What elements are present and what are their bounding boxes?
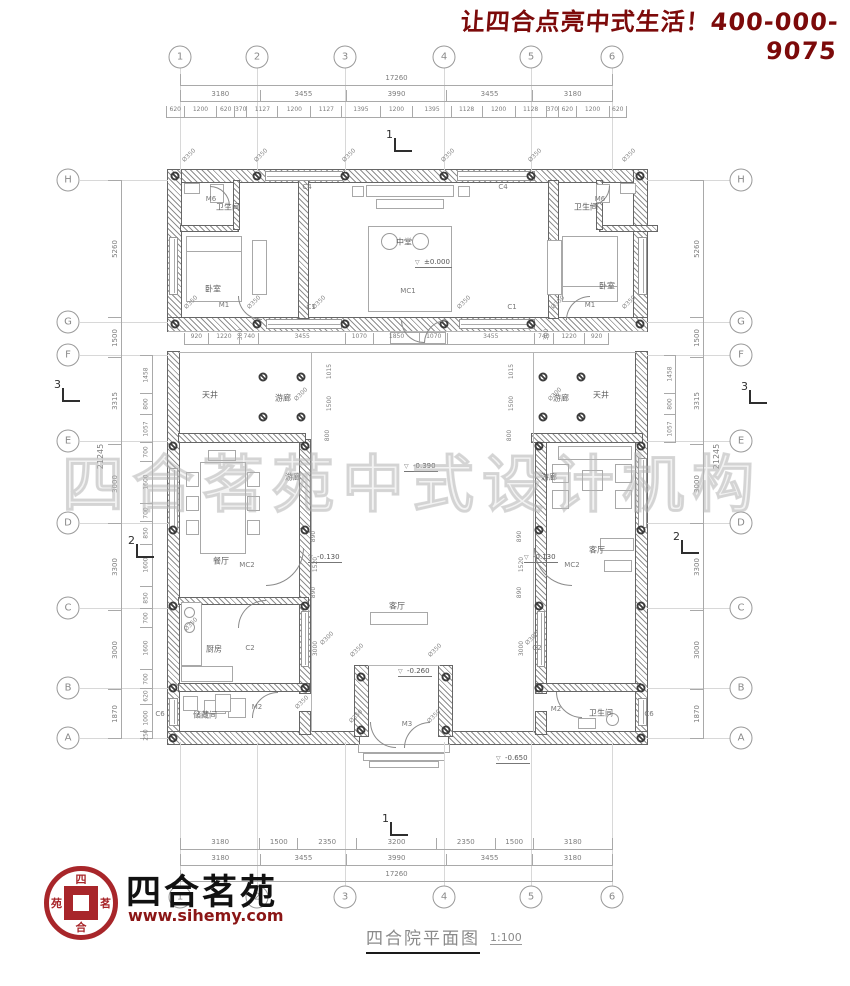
dim-value: 700 xyxy=(140,609,152,628)
dim-value: 3455 xyxy=(448,333,535,344)
dim-value: 1057 xyxy=(140,415,152,443)
dim-value: 1200 xyxy=(278,106,311,117)
column-symbol xyxy=(637,526,646,535)
drawing-line xyxy=(311,353,312,732)
column-symbol xyxy=(253,172,262,181)
section-line-icon xyxy=(136,544,154,558)
furniture-outline xyxy=(363,753,445,761)
wall-segment xyxy=(300,712,310,734)
grid-line-stub xyxy=(647,738,731,739)
dim-value: 1458 xyxy=(140,356,152,394)
grid-line-stub xyxy=(444,742,445,888)
window-symbol xyxy=(169,237,178,295)
grid-line-stub xyxy=(80,180,168,181)
room-label: 卫生间 xyxy=(589,708,613,719)
grid-line-stub xyxy=(647,688,731,689)
dim-value: 1127 xyxy=(247,106,278,117)
dim-value: 620 xyxy=(217,106,235,117)
dim-chain-horizontal: 31803455399034553180 xyxy=(180,90,613,102)
dim-value: 3000 xyxy=(108,445,121,524)
dim-chain-horizontal: 3180150023503200235015003180 xyxy=(180,838,613,850)
section-number: 3 xyxy=(741,380,748,393)
room-label: 卧室 xyxy=(599,281,615,292)
dim-value: 3315 xyxy=(108,358,121,445)
section-number: 1 xyxy=(386,128,393,141)
grid-bubble: G xyxy=(730,311,753,334)
section-line-icon xyxy=(62,388,80,402)
dim-value: 1220 xyxy=(209,333,240,344)
grid-bubble: B xyxy=(57,677,80,700)
furniture-outline xyxy=(247,520,260,535)
opening-code-label: M1 xyxy=(585,301,596,309)
furniture-outline xyxy=(252,240,267,295)
furniture-outline xyxy=(552,490,569,509)
window-symbol xyxy=(301,611,309,667)
dim-value: 5260 xyxy=(108,181,121,318)
room-label: 餐厅 xyxy=(213,556,229,567)
seal-char: 苑 xyxy=(51,895,62,911)
grid-line-stub xyxy=(647,322,731,323)
wall-segment xyxy=(600,226,657,231)
grid-bubble: G xyxy=(57,311,80,334)
opening-code-label: M2 xyxy=(252,703,263,711)
section-number: 1 xyxy=(382,812,389,825)
column-symbol xyxy=(637,734,646,743)
furniture-outline xyxy=(369,761,439,768)
dim-value: 1870 xyxy=(690,690,703,740)
column-dia-label: Ø350 xyxy=(349,642,365,658)
column-symbol xyxy=(169,442,178,451)
dim-value: 1500 xyxy=(108,318,121,358)
dim-value: 3300 xyxy=(690,524,703,611)
grid-line-stub xyxy=(612,742,613,888)
dim-value: 3455 xyxy=(261,90,347,101)
grid-bubble: E xyxy=(57,430,80,453)
room-label: 游廊 xyxy=(541,472,557,483)
column-dia-label: Ø300 xyxy=(319,630,335,646)
column-symbol xyxy=(442,726,451,735)
dim-value: 620 xyxy=(610,106,628,117)
level-mark: -0.260 xyxy=(398,667,432,677)
wall-segment xyxy=(168,170,647,182)
dim-chain-horizontal: 6201200620370112712001127139512001395112… xyxy=(166,106,627,118)
dim-value: 3180 xyxy=(533,90,613,101)
slogan-text: 让四合点亮中式生活！400-000-9075 xyxy=(398,2,840,65)
dim-value: 3000 xyxy=(108,611,121,690)
column-dia-label: Ø350 xyxy=(456,294,472,310)
furniture-outline xyxy=(620,183,636,194)
column-symbol xyxy=(301,442,310,451)
grid-line-stub xyxy=(80,523,168,524)
section-number: 3 xyxy=(54,378,61,391)
opening-code-label: M2 xyxy=(551,705,562,713)
section-line-icon xyxy=(749,390,767,404)
dim-value: 700 xyxy=(140,504,152,523)
column-symbol xyxy=(171,320,180,329)
column-symbol xyxy=(636,320,645,329)
grid-bubble: A xyxy=(57,727,80,750)
dim-value: 17260 xyxy=(181,74,613,85)
seal-center xyxy=(64,886,98,920)
dim-chain-horizontal: 9201220740345510701850107034557401220920 xyxy=(184,333,609,345)
grid-line-stub xyxy=(345,742,346,888)
dim-value: 920 xyxy=(585,333,609,344)
wall-segment xyxy=(168,732,359,744)
dim-value: 620 xyxy=(140,689,152,706)
dim-value: 800 xyxy=(140,394,152,415)
opening-code-label: M6 xyxy=(595,195,606,203)
dim-value: 1220 xyxy=(554,333,585,344)
interior-dim-value: 3000 xyxy=(518,641,525,656)
column-symbol xyxy=(169,526,178,535)
floor-plan-canvas: 卫生间卫生间卧室卧室中堂天井天井游廊游廊游廊游廊餐厅厨房储藏间客厅客厅卫生间M6… xyxy=(0,0,850,986)
window-symbol xyxy=(265,171,343,181)
opening-code-label: C2 xyxy=(245,644,254,652)
furniture-outline xyxy=(186,520,199,535)
grid-bubble: C xyxy=(730,597,753,620)
interior-dim-value: 1500 xyxy=(326,396,333,411)
opening-code-label: MC2 xyxy=(564,561,579,569)
column-symbol xyxy=(535,684,544,693)
column-symbol xyxy=(442,673,451,682)
dim-value: 1200 xyxy=(381,106,414,117)
grid-line-stub xyxy=(80,608,168,609)
furniture-outline xyxy=(558,446,632,460)
column-dia-label: Ø300 xyxy=(293,386,309,402)
dim-value: 3000 xyxy=(690,445,703,524)
grid-bubble: D xyxy=(57,512,80,535)
column-symbol xyxy=(527,320,536,329)
column-dia-label: Ø350 xyxy=(440,147,456,163)
dim-total-left: 21245 xyxy=(96,444,105,469)
dim-value: 920 xyxy=(185,333,209,344)
furniture-outline xyxy=(181,666,233,682)
dim-value: 1870 xyxy=(108,690,121,740)
column-symbol xyxy=(169,734,178,743)
column-symbol xyxy=(259,373,268,382)
column-symbol xyxy=(637,442,646,451)
dim-value: 620 xyxy=(559,106,577,117)
column-symbol xyxy=(169,684,178,693)
room-label: 厨房 xyxy=(206,644,222,655)
furniture-outline xyxy=(578,718,596,729)
section-line-icon xyxy=(681,540,699,554)
interior-dim-value: 800 xyxy=(324,430,331,441)
plan-title: 四合院平面图 xyxy=(366,924,480,954)
opening-code-label: C6 xyxy=(155,710,164,718)
window-symbol xyxy=(638,458,647,528)
blueprint-page: 让四合点亮中式生活！400-000-9075 卫生间卫生间卧室卧室中堂天井天井游… xyxy=(0,0,850,986)
dim-value: 1128 xyxy=(516,106,547,117)
opening-code-label: M3 xyxy=(402,720,413,728)
column-dia-label: Ø350 xyxy=(427,642,443,658)
grid-bubble: 3 xyxy=(334,886,357,909)
dim-value: 3990 xyxy=(347,854,447,865)
interior-dim-value: 1015 xyxy=(508,364,515,379)
level-mark: ±0.000 xyxy=(415,258,452,268)
grid-bubble: 6 xyxy=(601,886,624,909)
dim-value: 620 xyxy=(167,106,185,117)
dim-value: 370 xyxy=(235,106,247,117)
column-symbol xyxy=(341,320,350,329)
furniture-outline xyxy=(582,470,603,491)
dim-value: 3455 xyxy=(447,90,533,101)
furniture-outline xyxy=(247,472,260,487)
interior-dim-value: 890 xyxy=(516,587,523,598)
level-mark: -0.390 xyxy=(404,462,438,472)
dim-value: 3180 xyxy=(533,854,613,865)
dim-value: 1850 xyxy=(374,333,421,344)
grid-bubble: 1 xyxy=(169,46,192,69)
column-symbol xyxy=(301,526,310,535)
dim-value: 740 xyxy=(535,333,554,344)
column-symbol xyxy=(357,726,366,735)
furniture-outline xyxy=(366,185,454,197)
grid-bubble: H xyxy=(730,169,753,192)
window-symbol xyxy=(459,319,535,329)
column-symbol xyxy=(297,373,306,382)
furniture-outline xyxy=(186,236,242,252)
furniture-outline xyxy=(376,199,444,209)
column-symbol xyxy=(301,684,310,693)
window-symbol xyxy=(537,611,545,667)
furniture-outline xyxy=(615,490,632,509)
dim-value: 700 xyxy=(140,670,152,689)
drawing-line xyxy=(533,353,534,732)
column-dia-label: Ø350 xyxy=(181,147,197,163)
wall-segment xyxy=(299,181,308,318)
brand-url: www.sihemy.com xyxy=(128,906,284,925)
interior-dim-value: 890 xyxy=(310,587,317,598)
opening-code-label: C2 xyxy=(532,644,541,652)
grid-bubble: D xyxy=(730,512,753,535)
wall-segment xyxy=(179,434,305,442)
furniture-outline xyxy=(604,560,632,572)
seal-char: 四 xyxy=(76,871,87,887)
wall-segment xyxy=(179,684,309,691)
wall-segment xyxy=(536,712,546,734)
room-label: 天井 xyxy=(593,390,609,401)
door-swing-arc xyxy=(266,548,304,586)
interior-dim-value: 890 xyxy=(516,531,523,542)
interior-dim-value: 890 xyxy=(310,531,317,542)
grid-line-stub xyxy=(80,441,168,442)
dim-value: 850 xyxy=(140,522,152,545)
dim-value: 3455 xyxy=(447,854,533,865)
wall-segment xyxy=(449,732,647,744)
dim-value: 1395 xyxy=(413,106,451,117)
dim-value: 3300 xyxy=(108,524,121,611)
column-symbol xyxy=(297,413,306,422)
column-symbol xyxy=(341,172,350,181)
furniture-outline xyxy=(547,240,562,295)
grid-line-stub xyxy=(80,688,168,689)
column-symbol xyxy=(169,602,178,611)
opening-code-label: MC2 xyxy=(239,561,254,569)
drawing-line xyxy=(368,665,440,666)
window-symbol xyxy=(638,237,647,295)
wall-segment xyxy=(532,434,642,442)
grid-line-stub xyxy=(647,523,731,524)
dim-value: 1127 xyxy=(311,106,342,117)
opening-code-label: C6 xyxy=(644,710,653,718)
dim-value: 1128 xyxy=(452,106,483,117)
column-symbol xyxy=(577,373,586,382)
column-symbol xyxy=(440,172,449,181)
furniture-outline xyxy=(352,186,364,197)
window-symbol xyxy=(457,171,535,181)
dim-value: 1458 xyxy=(664,356,675,394)
section-line-icon xyxy=(390,822,408,836)
title-block: 四合院平面图1:100 xyxy=(366,924,522,954)
dim-value: 2350 xyxy=(298,838,357,849)
room-label: 中堂 xyxy=(396,237,412,248)
column-dia-label: Ø350 xyxy=(311,294,327,310)
column-symbol xyxy=(253,320,262,329)
furniture-outline xyxy=(370,612,428,625)
interior-dim-value: 3000 xyxy=(312,641,319,656)
dim-value: 3315 xyxy=(690,358,703,445)
dim-chain-horizontal: 17260 xyxy=(180,74,613,86)
opening-code-label: M1 xyxy=(219,301,230,309)
dim-value: 3180 xyxy=(534,838,613,849)
column-dia-label: Ø350 xyxy=(253,147,269,163)
column-dia-label: Ø350 xyxy=(341,147,357,163)
column-dia-label: Ø350 xyxy=(294,694,310,710)
grid-bubble: E xyxy=(730,430,753,453)
column-symbol xyxy=(636,172,645,181)
grid-line-stub xyxy=(647,441,731,442)
dim-value: 370 xyxy=(547,106,559,117)
furniture-circle xyxy=(381,233,398,250)
column-symbol xyxy=(301,602,310,611)
grid-line-stub xyxy=(647,608,731,609)
furniture-outline xyxy=(615,464,632,483)
column-symbol xyxy=(535,526,544,535)
dim-value: 1500 xyxy=(496,838,534,849)
column-symbol xyxy=(535,602,544,611)
dim-value: 3180 xyxy=(181,838,260,849)
grid-line-stub xyxy=(531,742,532,888)
grid-bubble: 2 xyxy=(246,46,269,69)
dim-value: 1600 xyxy=(140,628,152,670)
dim-value: 1395 xyxy=(342,106,380,117)
column-dia-label: Ø350 xyxy=(621,147,637,163)
window-symbol xyxy=(169,468,178,530)
column-symbol xyxy=(535,442,544,451)
furniture-outline xyxy=(600,538,634,551)
room-label: 游廊 xyxy=(275,393,291,404)
furniture-outline xyxy=(184,183,200,194)
wall-segment xyxy=(536,684,640,691)
grid-bubble: 4 xyxy=(433,886,456,909)
window-symbol xyxy=(169,698,178,726)
section-line-icon xyxy=(394,138,412,152)
grid-bubble: H xyxy=(57,169,80,192)
level-mark: -0.650 xyxy=(496,754,530,764)
section-number: 2 xyxy=(128,534,135,547)
window-symbol xyxy=(266,319,342,329)
dim-value: 1500 xyxy=(690,318,703,358)
column-symbol xyxy=(577,413,586,422)
column-dia-label: Ø350 xyxy=(527,147,543,163)
opening-code-label: MC1 xyxy=(400,287,415,295)
grid-bubble: A xyxy=(730,727,753,750)
furniture-outline xyxy=(208,450,236,461)
dim-value: 5260 xyxy=(690,181,703,318)
room-label: 卫生间 xyxy=(574,202,598,213)
dim-value: 1000 xyxy=(140,705,152,731)
furniture-outline xyxy=(200,462,246,554)
grid-line-stub xyxy=(80,355,168,356)
dim-value: 1057 xyxy=(664,415,675,443)
column-symbol xyxy=(637,602,646,611)
dim-value: 800 xyxy=(664,394,675,415)
column-symbol xyxy=(637,684,646,693)
dim-value: 740 xyxy=(240,333,259,344)
dim-value: 700 xyxy=(140,443,152,462)
interior-dim-value: 800 xyxy=(506,430,513,441)
brand-seal-icon: 四 茗 合 苑 xyxy=(44,866,118,940)
dim-value: 3990 xyxy=(347,90,447,101)
dim-chain-vertical: 5260150033153000330030001870 xyxy=(108,180,122,739)
dim-value: 250 xyxy=(140,732,152,739)
dim-total-right: 21245 xyxy=(712,444,721,469)
room-label: 客厅 xyxy=(589,545,605,556)
furniture-circle xyxy=(412,233,429,250)
dim-chain-vertical: 14588001057 xyxy=(664,355,676,443)
grid-line-stub xyxy=(647,180,731,181)
column-symbol xyxy=(259,413,268,422)
furniture-outline xyxy=(215,694,231,712)
room-label: 卫生间 xyxy=(216,202,240,213)
column-symbol xyxy=(357,673,366,682)
grid-line-stub xyxy=(80,738,168,739)
grid-bubble: C xyxy=(57,597,80,620)
opening-code-label: M6 xyxy=(206,195,217,203)
room-label: 游廊 xyxy=(285,472,301,483)
column-symbol xyxy=(171,172,180,181)
dim-value: 1070 xyxy=(420,333,448,344)
opening-code-label: C1 xyxy=(507,303,516,311)
wall-segment xyxy=(181,226,238,231)
grid-bubble: 3 xyxy=(334,46,357,69)
seal-char: 茗 xyxy=(100,895,111,911)
column-symbol xyxy=(539,413,548,422)
furniture-outline xyxy=(186,472,199,487)
dim-value: 1600 xyxy=(140,462,152,504)
level-mark: -0.130 xyxy=(524,553,558,563)
dim-value: 2350 xyxy=(437,838,496,849)
grid-bubble: F xyxy=(730,344,753,367)
column-symbol xyxy=(539,373,548,382)
furniture-outline xyxy=(247,496,260,511)
dim-value: 3200 xyxy=(357,838,437,849)
dim-value: 850 xyxy=(140,587,152,610)
dim-value: 1070 xyxy=(346,333,374,344)
column-symbol xyxy=(527,172,536,181)
level-mark: -0.130 xyxy=(308,553,342,563)
door-swing-arc xyxy=(238,600,266,628)
room-label: 客厅 xyxy=(389,601,405,612)
grid-line-stub xyxy=(647,355,731,356)
furniture-outline xyxy=(186,496,199,511)
interior-dim-value: 1500 xyxy=(508,396,515,411)
seal-char: 合 xyxy=(76,919,87,935)
room-label: 天井 xyxy=(202,390,218,401)
dim-value: 3180 xyxy=(181,90,261,101)
dim-value: 1200 xyxy=(577,106,610,117)
